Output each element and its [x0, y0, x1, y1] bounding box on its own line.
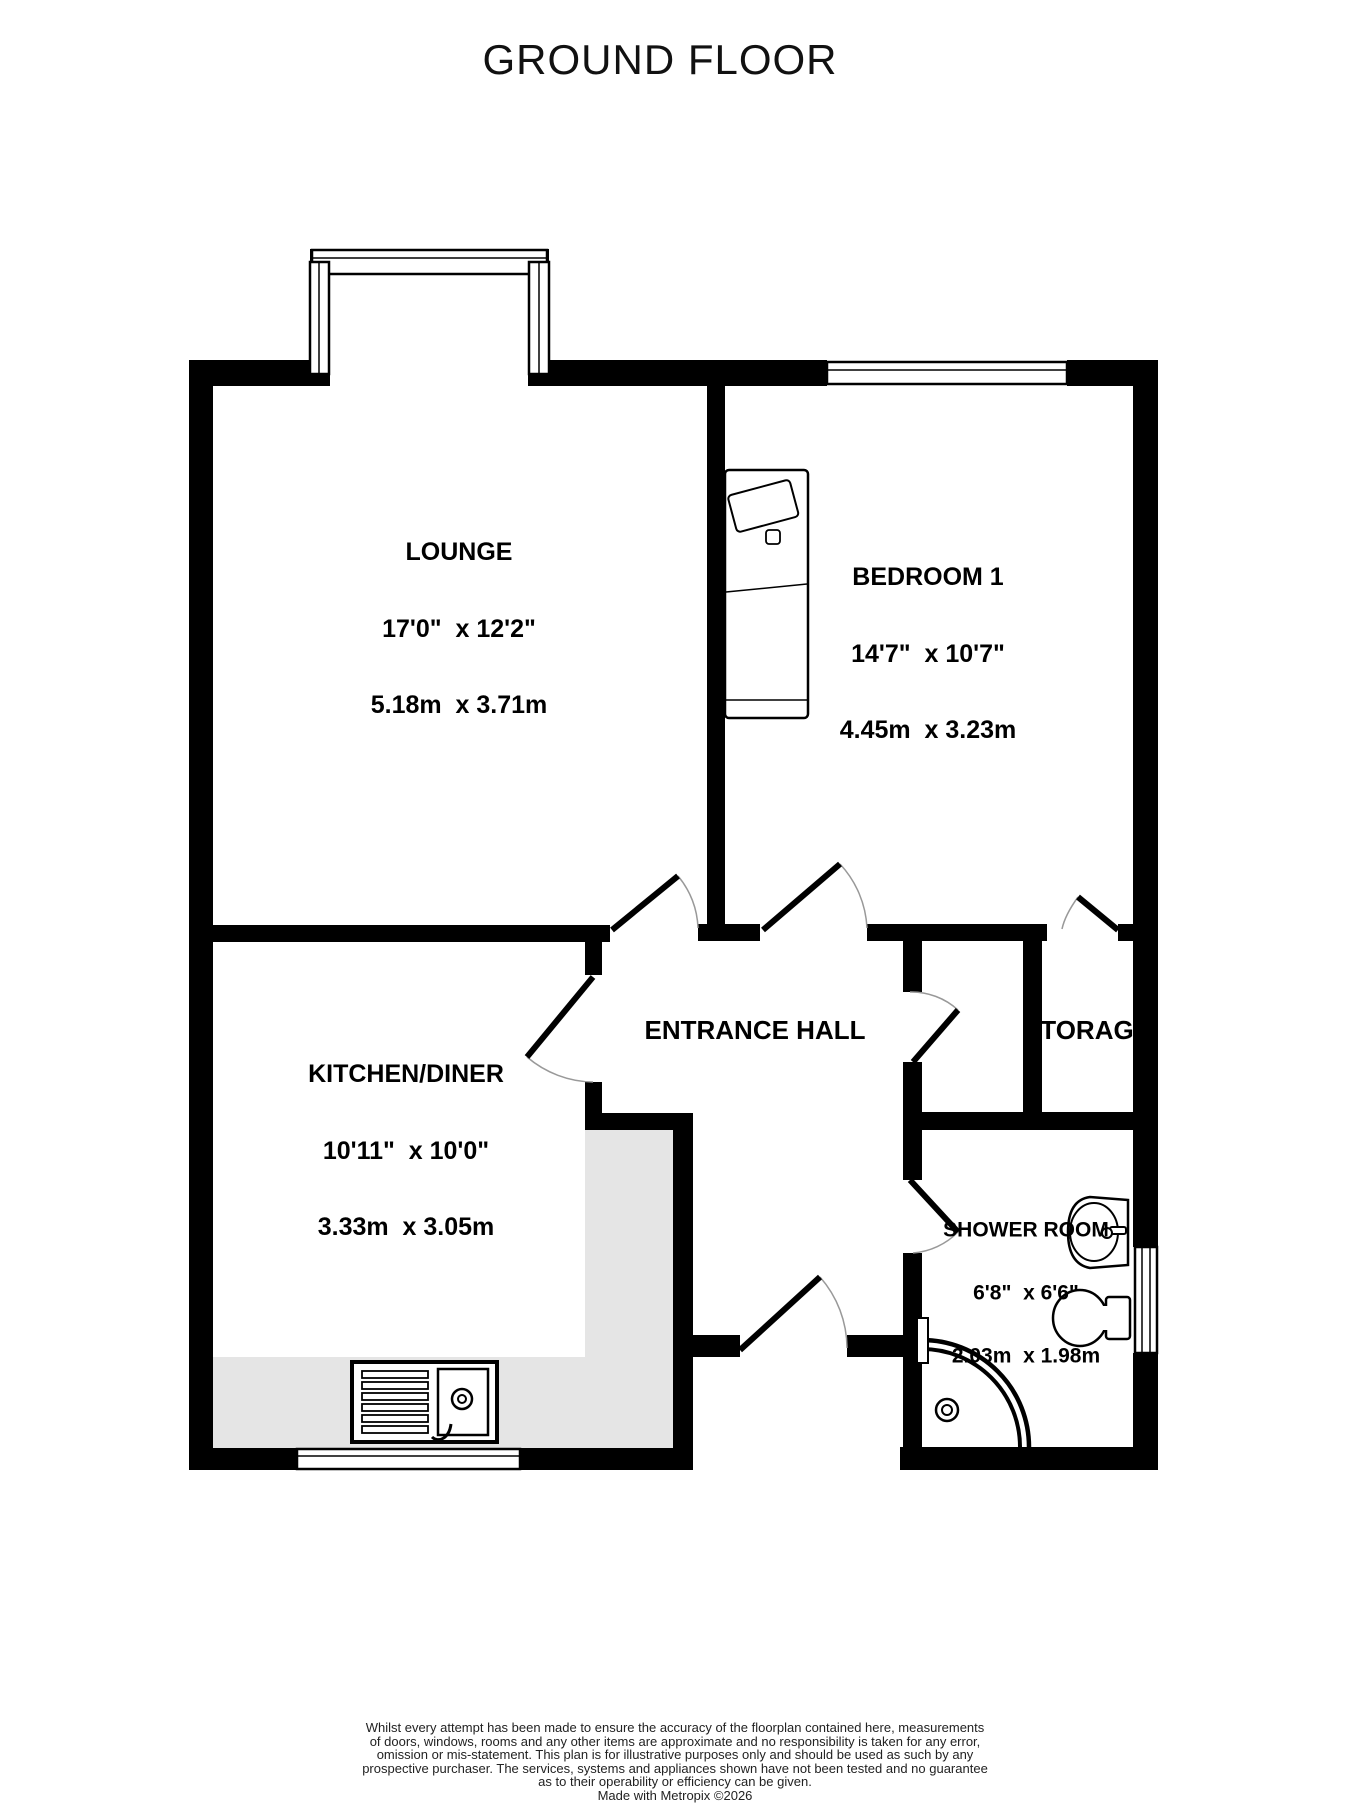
disclaimer-line: prospective purchaser. The services, sys…: [0, 1762, 1350, 1776]
lounge-door: [612, 876, 698, 930]
room-dims-imperial: 10'11" x 10'0": [308, 1138, 504, 1164]
room-dims-imperial: 6'8" x 6'6": [943, 1283, 1109, 1304]
room-name: BEDROOM 1: [840, 565, 1017, 591]
disclaimer-line: as to their operability or efficiency ca…: [0, 1775, 1350, 1789]
room-dims-metric: 2.03m x 1.98m: [943, 1346, 1109, 1367]
kitchen-window: [297, 1449, 520, 1469]
disclaimer-line: of doors, windows, rooms and any other i…: [0, 1735, 1350, 1749]
metropix-credit: Made with Metropix ©2026: [0, 1789, 1350, 1803]
room-name: SHOWER ROOM: [943, 1220, 1109, 1241]
storage-door: [1062, 897, 1118, 930]
room-name: KITCHEN/DINER: [308, 1062, 504, 1088]
room-name: ENTRANCE HALL: [645, 1017, 866, 1043]
room-dims-metric: 5.18m x 3.71m: [371, 693, 548, 719]
kitchen-sink-icon: [352, 1362, 497, 1442]
floorplan-page: GROUND FLOOR STORAGE: [0, 0, 1350, 1807]
bay-window: [310, 250, 549, 374]
floorplan-drawing: [0, 0, 1350, 1807]
room-dims-metric: 3.33m x 3.05m: [308, 1215, 504, 1241]
disclaimer: Whilst every attempt has been made to en…: [0, 1721, 1350, 1802]
kitchen-door: [527, 977, 593, 1082]
room-dims-imperial: 17'0" x 12'2": [371, 616, 548, 642]
room-dims-imperial: 14'7" x 10'7": [840, 641, 1017, 667]
shower-window: [1135, 1247, 1157, 1353]
bedroom-window: [827, 362, 1067, 384]
page-title: GROUND FLOOR: [0, 36, 1320, 84]
front-door: [740, 1277, 847, 1350]
bedroom-door: [763, 864, 867, 930]
room-name: LOUNGE: [371, 540, 548, 566]
room-label-shower-room: SHOWER ROOM 6'8" x 6'6" 2.03m x 1.98m: [943, 1178, 1109, 1409]
room-label-kitchen-diner: KITCHEN/DINER 10'11" x 10'0" 3.33m x 3.0…: [308, 1011, 504, 1292]
disclaimer-line: omission or mis-statement. This plan is …: [0, 1748, 1350, 1762]
room-label-lounge: LOUNGE 17'0" x 12'2" 5.18m x 3.71m: [371, 489, 548, 770]
room-dims-metric: 4.45m x 3.23m: [840, 718, 1017, 744]
disclaimer-line: Whilst every attempt has been made to en…: [0, 1721, 1350, 1735]
hall-cupboard-door: [910, 992, 958, 1062]
room-label-entrance-hall: ENTRANCE HALL: [645, 965, 866, 1095]
room-label-bedroom1: BEDROOM 1 14'7" x 10'7" 4.45m x 3.23m: [840, 514, 1017, 795]
bed-icon: [725, 470, 808, 718]
